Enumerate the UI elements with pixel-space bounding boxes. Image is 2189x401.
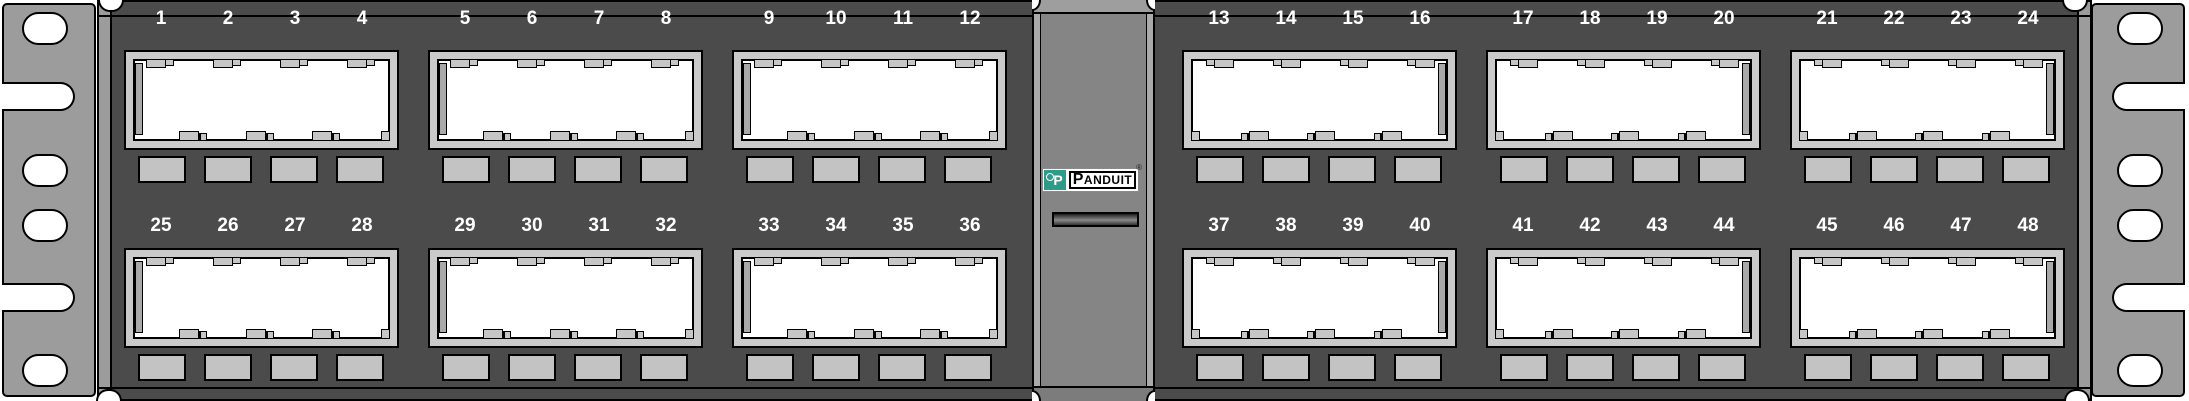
jack-bottom-latch xyxy=(1545,329,1573,339)
latch-body xyxy=(1923,131,1943,141)
port-group-internals xyxy=(734,250,1005,346)
latch-step xyxy=(908,59,916,66)
jack-corner-tab xyxy=(1191,131,1200,141)
latch-step xyxy=(470,257,478,264)
latch-step xyxy=(332,133,340,141)
jack-side-strip xyxy=(1438,63,1446,135)
label-holder xyxy=(878,156,926,183)
jack-bottom-latch xyxy=(483,329,511,339)
latch-body xyxy=(1348,59,1368,68)
jack-bottom-latch xyxy=(550,131,578,141)
jack-bottom-latch xyxy=(312,131,340,141)
jack-top-latch xyxy=(1711,257,1739,266)
port-number: 18 xyxy=(1570,8,1610,30)
port-number: 21 xyxy=(1807,8,1847,30)
jack-side-strip xyxy=(439,63,447,135)
port-group xyxy=(428,50,703,150)
port-number: 31 xyxy=(579,215,619,237)
jack-top-latch xyxy=(1644,59,1672,68)
logo-mark-letter: P xyxy=(1053,172,1062,188)
label-holder xyxy=(640,156,688,183)
jack-side-strip xyxy=(2046,261,2054,333)
jack-top-latch xyxy=(450,257,478,266)
jack-opening xyxy=(133,257,390,339)
jack-corner-tab xyxy=(1191,329,1200,339)
jack-corner-tab xyxy=(685,329,694,339)
latch-step xyxy=(332,331,340,339)
port-number: 17 xyxy=(1503,8,1543,30)
jack-bottom-latch xyxy=(1982,329,2010,339)
mounting-slot xyxy=(2112,283,2185,312)
latch-step xyxy=(1241,133,1249,141)
latch-body xyxy=(888,59,908,68)
port-number: 46 xyxy=(1874,215,1914,237)
port-number: 28 xyxy=(342,215,382,237)
jack-bottom-latch xyxy=(616,329,644,339)
latch-step xyxy=(1374,331,1382,339)
latch-body xyxy=(1652,59,1672,68)
port-number: 2 xyxy=(208,8,248,30)
jack-bottom-latch xyxy=(179,131,207,141)
latch-body xyxy=(1249,131,1269,141)
port-group-internals xyxy=(430,52,701,148)
divider-label-slot xyxy=(1052,212,1139,227)
jack-opening xyxy=(1191,257,1448,339)
latch-step xyxy=(975,59,983,66)
latch-step xyxy=(908,257,916,264)
latch-step xyxy=(1374,133,1382,141)
label-holder xyxy=(1804,354,1852,381)
jack-top-latch xyxy=(213,257,241,266)
panel-left-edge xyxy=(99,2,112,399)
port-number: 38 xyxy=(1266,215,1306,237)
latch-step xyxy=(774,59,782,66)
latch-step xyxy=(874,331,882,339)
port-group xyxy=(124,50,399,150)
latch-body xyxy=(146,257,166,266)
mounting-hole xyxy=(2117,209,2163,242)
label-holder xyxy=(1698,354,1746,381)
logo-mark: P xyxy=(1044,170,1066,190)
jack-corner-tab xyxy=(381,329,390,339)
port-group-internals xyxy=(430,250,701,346)
jack-bottom-latch xyxy=(312,329,340,339)
port-group-internals xyxy=(1488,52,1759,148)
latch-body xyxy=(920,329,940,339)
port-number: 41 xyxy=(1503,215,1543,237)
latch-body xyxy=(1822,59,1842,68)
label-holder xyxy=(1804,156,1852,183)
latch-body xyxy=(1923,329,1943,339)
latch-step xyxy=(1982,331,1990,339)
jack-bottom-latch xyxy=(1678,131,1706,141)
jack-top-latch xyxy=(1814,257,1842,266)
port-group xyxy=(1182,248,1457,348)
jack-opening xyxy=(437,59,694,141)
port-number: 13 xyxy=(1199,8,1239,30)
latch-body xyxy=(920,131,940,141)
port-number: 32 xyxy=(646,215,686,237)
latch-step xyxy=(1678,133,1686,141)
jack-top-latch xyxy=(888,257,916,266)
latch-body xyxy=(246,131,266,141)
jack-top-latch xyxy=(1340,59,1368,68)
port-group xyxy=(1486,248,1761,348)
latch-body xyxy=(1719,257,1739,266)
jack-bottom-latch xyxy=(920,131,948,141)
port-group-internals xyxy=(1792,250,2063,346)
latch-body xyxy=(1281,257,1301,266)
jack-bottom-latch xyxy=(1982,131,2010,141)
jack-corner-tab xyxy=(1799,131,1808,141)
label-holder xyxy=(442,156,490,183)
latch-step xyxy=(1644,257,1652,264)
jack-side-strip xyxy=(439,261,447,333)
latch-body xyxy=(1382,329,1402,339)
jack-bottom-latch xyxy=(1241,329,1269,339)
jack-top-latch xyxy=(517,59,545,68)
latch-step xyxy=(300,59,308,66)
jack-opening xyxy=(1191,59,1448,141)
jack-top-latch xyxy=(888,59,916,68)
latch-step xyxy=(2015,257,2023,264)
latch-body xyxy=(787,131,807,141)
port-number: 34 xyxy=(816,215,856,237)
latch-step xyxy=(1510,59,1518,66)
latch-body xyxy=(854,131,874,141)
latch-step xyxy=(604,257,612,264)
label-holder xyxy=(1394,156,1442,183)
jack-bottom-latch xyxy=(787,329,815,339)
latch-step xyxy=(1273,257,1281,264)
mounting-hole xyxy=(2117,154,2163,187)
latch-body xyxy=(450,59,470,68)
port-number: 4 xyxy=(342,8,382,30)
label-holder xyxy=(508,156,556,183)
jack-bottom-latch xyxy=(1545,131,1573,141)
latch-body xyxy=(179,329,199,339)
jack-corner-tab xyxy=(1799,329,1808,339)
label-holder xyxy=(944,354,992,381)
latch-step xyxy=(1881,59,1889,66)
label-holder xyxy=(1698,156,1746,183)
latch-step xyxy=(841,59,849,66)
latch-body xyxy=(754,257,774,266)
jack-opening xyxy=(1799,257,2056,339)
latch-step xyxy=(1510,257,1518,264)
latch-body xyxy=(754,59,774,68)
port-number: 33 xyxy=(749,215,789,237)
label-holder xyxy=(336,156,384,183)
latch-body xyxy=(213,59,233,68)
latch-step xyxy=(166,59,174,66)
jack-bottom-latch xyxy=(1611,131,1639,141)
jack-corner-tab xyxy=(989,329,998,339)
latch-body xyxy=(517,59,537,68)
latch-body xyxy=(1214,257,1234,266)
port-group-internals xyxy=(126,250,397,346)
latch-step xyxy=(266,331,274,339)
divider-right-edge xyxy=(1146,0,1153,401)
latch-step xyxy=(636,331,644,339)
label-holder xyxy=(574,354,622,381)
latch-body xyxy=(787,329,807,339)
latch-step xyxy=(1711,257,1719,264)
port-number: 30 xyxy=(512,215,552,237)
port-group xyxy=(428,248,703,348)
port-number: 40 xyxy=(1400,215,1440,237)
latch-step xyxy=(1545,133,1553,141)
latch-body xyxy=(246,329,266,339)
jack-top-latch xyxy=(2015,59,2043,68)
jack-top-latch xyxy=(1206,257,1234,266)
jack-side-strip xyxy=(2046,63,2054,135)
latch-step xyxy=(1340,59,1348,66)
jack-top-latch xyxy=(955,59,983,68)
jack-top-latch xyxy=(450,59,478,68)
latch-step xyxy=(570,133,578,141)
jack-top-latch xyxy=(1510,257,1538,266)
latch-step xyxy=(1611,331,1619,339)
label-holder xyxy=(1632,156,1680,183)
label-holder xyxy=(1936,156,1984,183)
label-holder xyxy=(204,156,252,183)
jack-top-latch xyxy=(1340,257,1368,266)
jack-top-latch xyxy=(1273,257,1301,266)
latch-body xyxy=(1415,257,1435,266)
latch-body xyxy=(1956,59,1976,68)
jack-bottom-latch xyxy=(1849,131,1877,141)
label-holder xyxy=(2002,354,2050,381)
latch-body xyxy=(955,257,975,266)
divider-top-cap xyxy=(1034,0,1153,14)
latch-step xyxy=(1678,331,1686,339)
latch-step xyxy=(1307,133,1315,141)
port-group xyxy=(1790,248,2065,348)
latch-step xyxy=(1915,331,1923,339)
port-number: 6 xyxy=(512,8,552,30)
latch-body xyxy=(821,59,841,68)
port-group xyxy=(732,248,1007,348)
port-group-internals xyxy=(126,52,397,148)
jack-top-latch xyxy=(2015,257,2043,266)
latch-body xyxy=(1553,329,1573,339)
jack-top-latch xyxy=(1948,59,1976,68)
label-holder xyxy=(138,156,186,183)
label-holder xyxy=(640,354,688,381)
jack-top-latch xyxy=(347,59,375,68)
latch-body xyxy=(2023,257,2043,266)
latch-step xyxy=(1407,257,1415,264)
jack-top-latch xyxy=(1407,257,1435,266)
jack-opening xyxy=(1495,59,1752,141)
jack-bottom-latch xyxy=(1307,329,1335,339)
label-holder xyxy=(812,156,860,183)
jack-top-latch xyxy=(1881,59,1909,68)
latch-step xyxy=(1711,59,1719,66)
latch-step xyxy=(2015,59,2023,66)
latch-body xyxy=(550,131,570,141)
latch-step xyxy=(671,59,679,66)
jack-top-latch xyxy=(1510,59,1538,68)
port-number: 45 xyxy=(1807,215,1847,237)
latch-body xyxy=(146,59,166,68)
port-number: 25 xyxy=(141,215,181,237)
latch-body xyxy=(312,329,332,339)
port-number: 47 xyxy=(1941,215,1981,237)
latch-body xyxy=(651,59,671,68)
label-holder xyxy=(1870,156,1918,183)
jack-side-strip xyxy=(743,261,751,333)
divider-bottom-cap xyxy=(1034,386,1153,401)
label-holder xyxy=(1632,354,1680,381)
jack-top-latch xyxy=(280,59,308,68)
globe-icon xyxy=(1046,173,1054,181)
label-holder xyxy=(1500,354,1548,381)
port-number: 5 xyxy=(445,8,485,30)
jack-bottom-latch xyxy=(246,329,274,339)
label-holder xyxy=(138,354,186,381)
label-holder xyxy=(1262,354,1310,381)
latch-step xyxy=(266,133,274,141)
latch-step xyxy=(1644,59,1652,66)
jack-top-latch xyxy=(955,257,983,266)
latch-body xyxy=(1281,59,1301,68)
latch-body xyxy=(1652,257,1672,266)
port-number: 8 xyxy=(646,8,686,30)
jack-top-latch xyxy=(146,257,174,266)
latch-step xyxy=(1577,257,1585,264)
label-holder xyxy=(944,156,992,183)
port-number: 20 xyxy=(1704,8,1744,30)
jack-top-latch xyxy=(213,59,241,68)
latch-step xyxy=(975,257,983,264)
jack-bottom-latch xyxy=(1849,329,1877,339)
jack-bottom-latch xyxy=(1915,329,1943,339)
jack-corner-tab xyxy=(1495,329,1504,339)
latch-step xyxy=(233,257,241,264)
jack-top-latch xyxy=(1273,59,1301,68)
panduit-logo: P PANDUIT ® xyxy=(1042,168,1139,192)
port-number: 9 xyxy=(749,8,789,30)
latch-body xyxy=(1857,329,1877,339)
latch-body xyxy=(1415,59,1435,68)
right-mounting-bracket xyxy=(2091,3,2185,397)
latch-step xyxy=(1273,59,1281,66)
jack-bottom-latch xyxy=(246,131,274,141)
latch-step xyxy=(1307,331,1315,339)
jack-bottom-latch xyxy=(854,329,882,339)
jack-top-latch xyxy=(754,59,782,68)
latch-step xyxy=(841,257,849,264)
latch-body xyxy=(1990,131,2010,141)
latch-body xyxy=(1686,329,1706,339)
label-holder xyxy=(2002,156,2050,183)
jack-top-latch xyxy=(821,59,849,68)
mounting-slot xyxy=(2,283,75,312)
jack-top-latch xyxy=(1206,59,1234,68)
latch-body xyxy=(1214,59,1234,68)
latch-step xyxy=(940,133,948,141)
latch-step xyxy=(940,331,948,339)
latch-step xyxy=(199,133,207,141)
label-holder xyxy=(746,354,794,381)
latch-step xyxy=(1948,59,1956,66)
latch-body xyxy=(2023,59,2043,68)
latch-step xyxy=(570,331,578,339)
jack-opening xyxy=(1495,257,1752,339)
mounting-hole xyxy=(22,154,68,187)
latch-step xyxy=(807,331,815,339)
jack-opening xyxy=(741,59,998,141)
mounting-hole xyxy=(22,12,68,45)
label-holder xyxy=(1196,354,1244,381)
latch-body xyxy=(347,59,367,68)
registered-trademark-symbol: ® xyxy=(1136,163,1142,172)
label-holder xyxy=(878,354,926,381)
jack-corner-tab xyxy=(685,131,694,141)
jack-top-latch xyxy=(1711,59,1739,68)
jack-top-latch xyxy=(754,257,782,266)
port-number: 26 xyxy=(208,215,248,237)
jack-bottom-latch xyxy=(1915,131,1943,141)
port-number: 11 xyxy=(883,8,923,30)
jack-corner-tab xyxy=(1495,131,1504,141)
divider-left-edge xyxy=(1034,0,1041,401)
panel-right-edge xyxy=(2077,2,2090,399)
label-holder xyxy=(442,354,490,381)
port-number: 43 xyxy=(1637,215,1677,237)
label-holder xyxy=(1196,156,1244,183)
latch-step xyxy=(367,257,375,264)
label-holder xyxy=(1936,354,1984,381)
latch-step xyxy=(636,133,644,141)
jack-top-latch xyxy=(280,257,308,266)
jack-top-latch xyxy=(651,257,679,266)
latch-body xyxy=(483,329,503,339)
port-number: 29 xyxy=(445,215,485,237)
port-number: 24 xyxy=(2008,8,2048,30)
jack-top-latch xyxy=(517,257,545,266)
port-group-internals xyxy=(734,52,1005,148)
latch-body xyxy=(955,59,975,68)
jack-top-latch xyxy=(1644,257,1672,266)
label-holder xyxy=(1566,156,1614,183)
mounting-slot xyxy=(2,82,75,111)
jack-opening xyxy=(1799,59,2056,141)
port-number: 1 xyxy=(141,8,181,30)
latch-step xyxy=(604,59,612,66)
latch-body xyxy=(1619,329,1639,339)
latch-step xyxy=(774,257,782,264)
port-group xyxy=(1790,50,2065,150)
latch-step xyxy=(199,331,207,339)
latch-body xyxy=(888,257,908,266)
jack-opening xyxy=(437,257,694,339)
latch-step xyxy=(1206,59,1214,66)
jack-side-strip xyxy=(135,261,143,333)
jack-bottom-latch xyxy=(1374,131,1402,141)
port-number: 7 xyxy=(579,8,619,30)
latch-body xyxy=(584,257,604,266)
jack-top-latch xyxy=(821,257,849,266)
brand-name: PANDUIT xyxy=(1073,172,1133,188)
latch-step xyxy=(807,133,815,141)
latch-body xyxy=(1990,329,2010,339)
latch-step xyxy=(300,257,308,264)
latch-body xyxy=(1518,59,1538,68)
port-number: 42 xyxy=(1570,215,1610,237)
